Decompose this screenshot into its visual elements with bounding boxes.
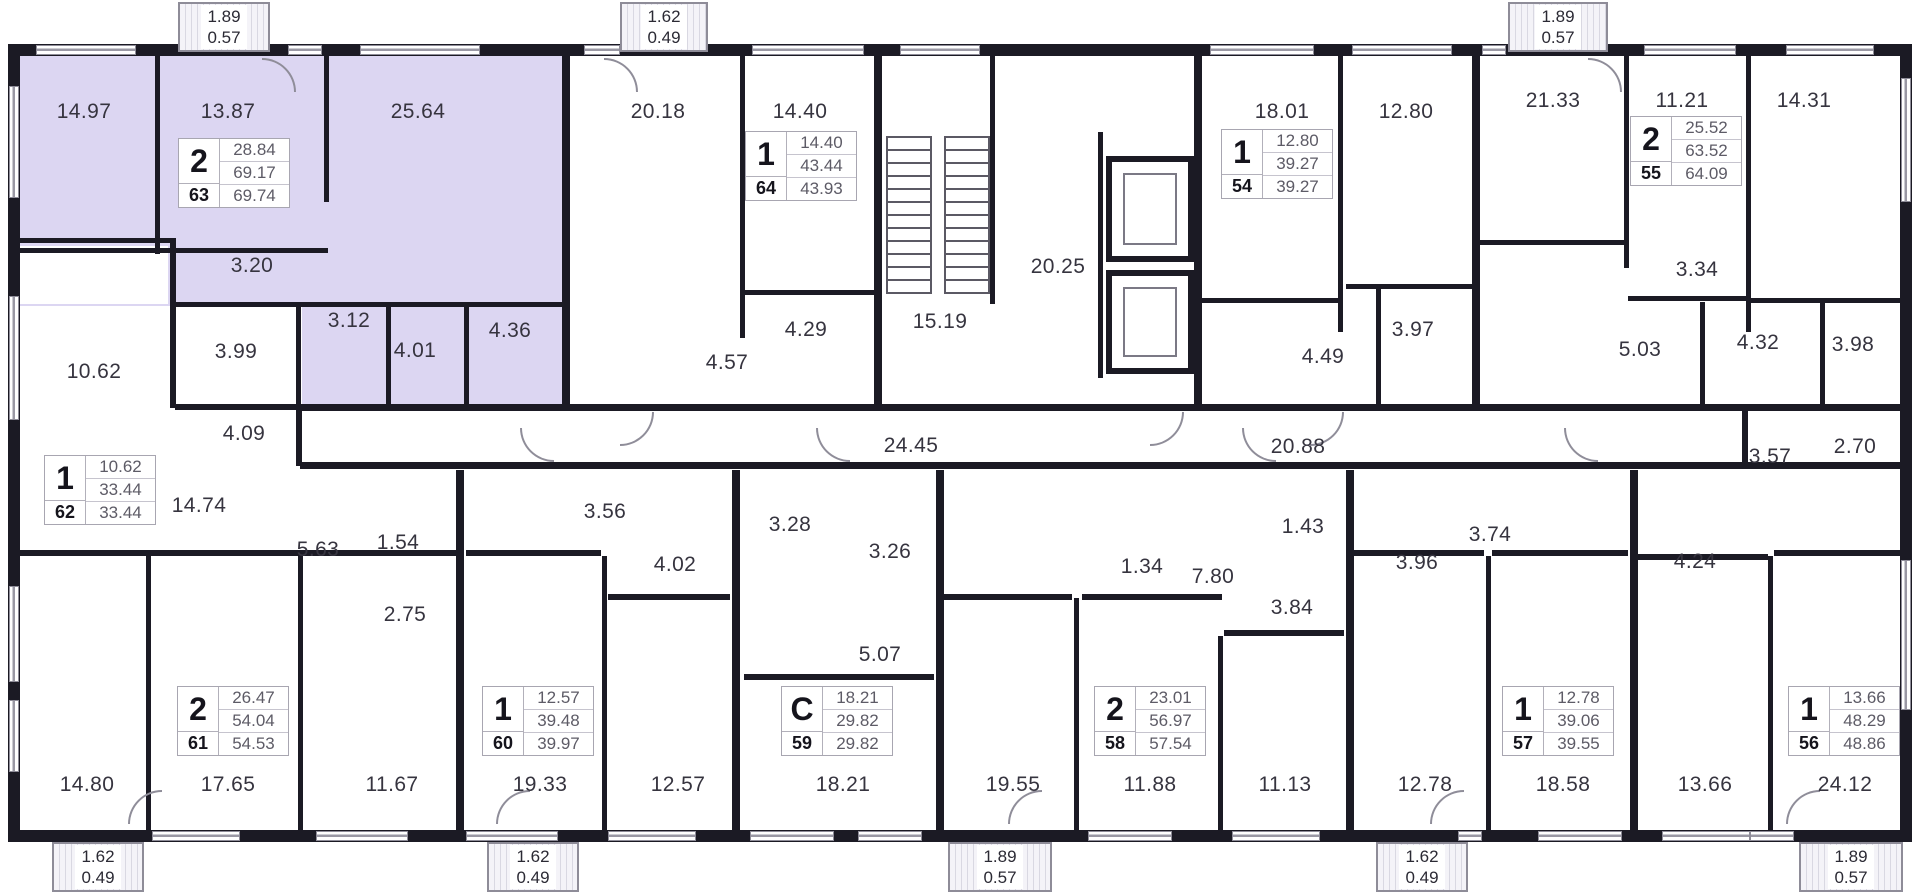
room-area-label: 2.70 <box>1834 435 1876 459</box>
room-area-label: 20.88 <box>1271 435 1326 459</box>
unit-area-value: 14.40 <box>787 132 856 154</box>
window-icon <box>900 45 980 55</box>
room-area-label: 12.80 <box>1379 100 1434 124</box>
window-icon <box>288 45 322 55</box>
room-area-label: 4.02 <box>654 553 696 577</box>
room-area-label: 3.99 <box>215 340 257 364</box>
wall <box>324 56 329 202</box>
balcony: 1.890.57 <box>948 842 1052 892</box>
unit-area-value: 48.29 <box>1830 709 1899 732</box>
room-area-label: 19.55 <box>986 773 1041 797</box>
window-icon <box>858 831 922 841</box>
window-icon <box>1458 831 1482 841</box>
room-area-label: 3.98 <box>1832 333 1874 357</box>
unit-area-value: 64.09 <box>1672 162 1741 185</box>
unit-area-value: 43.44 <box>787 154 856 177</box>
room-area-label: 14.97 <box>57 100 112 124</box>
room-area-label: 1.34 <box>1121 555 1163 579</box>
room-area-label: 1.54 <box>377 531 419 555</box>
unit-info-box-60[interactable]: 16012.5739.4839.97 <box>482 686 594 756</box>
wall <box>608 594 730 600</box>
staircase-icon <box>886 136 932 294</box>
wall <box>744 290 874 295</box>
unit-rooms-type: 2 <box>178 687 218 731</box>
wall <box>1472 56 1480 408</box>
room-area-label: 3.56 <box>584 500 626 524</box>
room-area-label: 4.36 <box>489 319 531 343</box>
room-area-label: 24.45 <box>884 434 939 458</box>
unit-number: 55 <box>1631 161 1671 185</box>
unit-area-value: 26.47 <box>219 687 288 709</box>
window-icon <box>466 831 558 841</box>
room-area-label: 15.19 <box>913 310 968 334</box>
wall <box>296 306 301 406</box>
window-icon <box>1901 78 1911 202</box>
wall <box>936 470 944 832</box>
unit-area-value: 39.48 <box>524 709 593 732</box>
window-icon <box>9 86 19 198</box>
door-arc-icon <box>620 412 654 446</box>
floor-plan: 14.9713.8725.6420.1814.4018.0112.8021.33… <box>0 0 1920 894</box>
wall <box>1082 594 1222 600</box>
room-area-label: 10.62 <box>67 360 122 384</box>
room-area-label: 4.24 <box>1674 550 1716 574</box>
wall <box>1628 296 1748 301</box>
wall <box>1742 404 1748 466</box>
unit-area-value: 69.17 <box>220 161 289 184</box>
room-area-label: 25.64 <box>391 100 446 124</box>
unit-rooms-type: 1 <box>1222 130 1262 174</box>
room-area-label: 3.34 <box>1676 258 1718 282</box>
balcony-area-label: 1.890.57 <box>1828 845 1873 890</box>
wall <box>1218 636 1223 832</box>
room-area-label: 24.12 <box>1818 773 1873 797</box>
room-area-label: 5.63 <box>297 538 339 562</box>
unit-rooms-type: 1 <box>1789 687 1829 731</box>
window-icon <box>9 700 19 772</box>
wall <box>744 674 934 680</box>
room-area-label: 20.18 <box>631 100 686 124</box>
wall <box>1492 550 1628 556</box>
balcony: 1.890.57 <box>178 2 270 52</box>
elevator-icon <box>1106 156 1194 262</box>
unit-number: 61 <box>178 731 218 755</box>
wall <box>1478 240 1626 245</box>
unit-area-value: 33.44 <box>86 478 155 501</box>
wall <box>1376 288 1381 406</box>
room-area-label: 18.21 <box>816 773 871 797</box>
wall <box>1486 556 1491 832</box>
room-area-label: 13.66 <box>1678 773 1733 797</box>
room-area-label: 14.80 <box>60 773 115 797</box>
unit-info-box-56[interactable]: 15613.6648.2948.86 <box>1788 686 1900 756</box>
unit-number: 58 <box>1095 731 1135 755</box>
room-area-label: 11.88 <box>1124 773 1177 797</box>
wall <box>8 238 173 243</box>
unit-number: 54 <box>1222 174 1262 198</box>
room-area-label: 7.80 <box>1192 565 1234 589</box>
unit-area-value: 18.21 <box>823 687 892 709</box>
wall <box>464 306 469 406</box>
door-arc-icon <box>1150 412 1184 446</box>
balcony: 1.890.57 <box>1799 842 1903 892</box>
unit-area-value: 12.57 <box>524 687 593 709</box>
unit-area-value: 29.82 <box>823 709 892 732</box>
room-area-label: 3.28 <box>769 513 811 537</box>
unit-info-box-64[interactable]: 16414.4043.4443.93 <box>745 131 857 201</box>
room-area-label: 3.74 <box>1469 523 1511 547</box>
wall <box>386 306 391 406</box>
unit-info-box-54[interactable]: 15412.8039.2739.27 <box>1221 129 1333 199</box>
window-icon <box>316 831 408 841</box>
unit-number: 57 <box>1503 731 1543 755</box>
unit-area-value: 29.82 <box>823 732 892 755</box>
unit-area-value: 63.52 <box>1672 139 1741 162</box>
balcony-area-label: 1.620.49 <box>510 845 555 890</box>
window-icon <box>752 45 864 55</box>
balcony-area-label: 1.620.49 <box>1399 845 1444 890</box>
room-area-label: 14.40 <box>773 100 828 124</box>
unit-area-value: 28.84 <box>220 139 289 161</box>
window-icon <box>1232 831 1320 841</box>
wall <box>1774 550 1900 556</box>
unit-info-box-57[interactable]: 15712.7839.0639.55 <box>1502 686 1614 756</box>
door-arc-icon <box>1786 790 1820 824</box>
unit-area-value: 12.80 <box>1263 130 1332 152</box>
balcony: 1.620.49 <box>487 842 579 892</box>
unit-area-value: 56.97 <box>1136 709 1205 732</box>
unit-number: 59 <box>782 731 822 755</box>
room-area-label: 4.29 <box>785 318 827 342</box>
wall <box>944 594 1072 600</box>
unit-number: 64 <box>746 176 786 200</box>
wall <box>1746 56 1751 332</box>
unit-area-value: 25.52 <box>1672 117 1741 139</box>
room-area-label: 18.58 <box>1536 773 1591 797</box>
unit-area-value: 39.06 <box>1544 709 1613 732</box>
unit-area-value: 54.53 <box>219 732 288 755</box>
unit-area-value: 43.93 <box>787 177 856 200</box>
door-arc-icon <box>520 428 554 462</box>
unit-area-value: 13.66 <box>1830 687 1899 709</box>
wall <box>296 404 302 466</box>
wall <box>1750 298 1902 303</box>
wall <box>1202 298 1340 303</box>
room-area-label: 5.07 <box>859 643 901 667</box>
wall <box>1624 56 1629 268</box>
room-area-label: 1.43 <box>1282 515 1324 539</box>
room-area-label: 3.20 <box>231 254 273 278</box>
room-area-label: 12.78 <box>1398 773 1453 797</box>
unit-area-value: 69.74 <box>220 184 289 207</box>
window-icon <box>9 586 19 682</box>
unit-rooms-type: 2 <box>179 139 219 183</box>
wall <box>175 302 566 307</box>
room-area-label: 5.03 <box>1619 338 1661 362</box>
room-area-label: 3.97 <box>1392 318 1434 342</box>
room-area-label: 19.33 <box>513 773 568 797</box>
wall <box>146 556 151 832</box>
room-area-label: 4.32 <box>1737 331 1779 355</box>
wall <box>562 56 570 408</box>
room-area-label: 11.21 <box>1656 89 1709 113</box>
window-icon <box>1662 831 1750 841</box>
unit-area-value: 57.54 <box>1136 732 1205 755</box>
window-icon <box>360 45 480 55</box>
room-area-label: 3.84 <box>1271 596 1313 620</box>
window-icon <box>1901 560 1911 710</box>
unit-info-box-63[interactable]: 26328.8469.1769.74 <box>178 138 290 208</box>
unit-rooms-type: 1 <box>45 456 85 500</box>
unit-area-value: 10.62 <box>86 456 155 478</box>
room-area-label: 17.65 <box>201 773 256 797</box>
wall <box>1338 56 1343 332</box>
unit-area-value: 39.55 <box>1544 732 1613 755</box>
unit-rooms-type: 1 <box>483 687 523 731</box>
room-area-label: 4.49 <box>1302 345 1344 369</box>
unit-area-value: 39.97 <box>524 732 593 755</box>
door-arc-icon <box>1564 428 1598 462</box>
balcony-area-label: 1.620.49 <box>641 5 686 50</box>
wall <box>874 56 882 408</box>
room-area-label: 14.74 <box>172 494 227 518</box>
window-icon <box>608 831 696 841</box>
balcony-area-label: 1.890.57 <box>201 5 246 50</box>
room-area-label: 12.57 <box>651 773 706 797</box>
door-arc-icon <box>604 58 638 92</box>
door-arc-icon <box>816 428 850 462</box>
room-area-label: 11.67 <box>366 773 419 797</box>
room-area-label: 13.87 <box>201 100 256 124</box>
room-area-label: 3.26 <box>869 540 911 564</box>
room-area-label: 4.57 <box>706 351 748 375</box>
balcony-area-label: 1.890.57 <box>977 845 1022 890</box>
wall <box>1074 598 1079 832</box>
wall <box>300 462 1902 469</box>
unit-area-value: 39.27 <box>1263 152 1332 175</box>
balcony: 1.620.49 <box>52 842 144 892</box>
wall <box>170 238 176 408</box>
balcony: 1.890.57 <box>1508 2 1608 52</box>
unit-area-value: 39.27 <box>1263 175 1332 198</box>
unit-area-value: 54.04 <box>219 709 288 732</box>
balcony: 1.620.49 <box>1376 842 1468 892</box>
unit-number: 56 <box>1789 731 1829 755</box>
window-icon <box>1088 831 1172 841</box>
room-area-label: 3.12 <box>328 309 370 333</box>
wall <box>602 556 607 832</box>
unit-rooms-type: C <box>782 687 822 731</box>
room-area-label: 21.33 <box>1526 89 1581 113</box>
unit-area-value: 48.86 <box>1830 732 1899 755</box>
unit-area-value: 12.78 <box>1544 687 1613 709</box>
door-arc-icon <box>1588 58 1622 92</box>
balcony-area-label: 1.890.57 <box>1535 5 1580 50</box>
window-icon <box>1750 831 1794 841</box>
unit-rooms-type: 1 <box>746 132 786 176</box>
window-icon <box>584 45 620 55</box>
window-icon <box>1538 831 1622 841</box>
room-area-label: 18.01 <box>1255 100 1310 124</box>
unit-info-box-55[interactable]: 25525.5263.5264.09 <box>1630 116 1742 186</box>
wall <box>1098 132 1103 378</box>
wall <box>466 550 601 556</box>
staircase-icon <box>944 136 990 294</box>
room-area-label: 3.57 <box>1749 445 1791 469</box>
unit-info-box-58[interactable]: 25823.0156.9757.54 <box>1094 686 1206 756</box>
window-icon <box>152 831 240 841</box>
unit-info-box-62[interactable]: 16210.6233.4433.44 <box>44 455 156 525</box>
window-icon <box>1786 45 1874 55</box>
wall <box>155 56 160 254</box>
unit-rooms-type: 2 <box>1095 687 1135 731</box>
room-area-label: 20.25 <box>1031 255 1086 279</box>
window-icon <box>36 45 136 55</box>
unit-info-box-61[interactable]: 26126.4754.0454.53 <box>177 686 289 756</box>
wall <box>1224 630 1344 636</box>
wall <box>8 248 328 253</box>
elevator-icon <box>1106 270 1194 374</box>
room-area-label: 3.96 <box>1396 551 1438 575</box>
room-area-label: 14.31 <box>1777 89 1832 113</box>
wall <box>1194 56 1202 408</box>
unit-area-value: 23.01 <box>1136 687 1205 709</box>
wall <box>8 830 1912 842</box>
door-arc-icon <box>128 790 162 824</box>
wall <box>1346 470 1354 832</box>
wall <box>1768 556 1773 832</box>
wall <box>456 470 464 832</box>
room-cover <box>18 246 168 304</box>
window-icon <box>1210 45 1314 55</box>
wall <box>1700 302 1705 404</box>
room-area-label: 4.09 <box>223 422 265 446</box>
wall <box>990 56 995 304</box>
wall <box>1630 470 1638 832</box>
window-icon <box>9 296 19 420</box>
wall <box>298 556 303 832</box>
balcony: 1.620.49 <box>620 2 708 52</box>
unit-number: 63 <box>179 183 219 207</box>
wall <box>300 404 1902 411</box>
room-area-label: 2.75 <box>384 603 426 627</box>
room-area-label: 11.13 <box>1259 773 1312 797</box>
wall <box>732 470 740 832</box>
wall <box>1346 284 1474 289</box>
unit-info-box-59[interactable]: C5918.2129.8229.82 <box>781 686 893 756</box>
unit-area-value: 33.44 <box>86 501 155 524</box>
wall <box>1820 302 1825 404</box>
unit-rooms-type: 2 <box>1631 117 1671 161</box>
unit-number: 62 <box>45 500 85 524</box>
room-area-label: 4.01 <box>394 339 436 363</box>
unit-number: 60 <box>483 731 523 755</box>
window-icon <box>1644 45 1736 55</box>
window-icon <box>1482 45 1506 55</box>
window-icon <box>750 831 834 841</box>
balcony-area-label: 1.620.49 <box>75 845 120 890</box>
window-icon <box>1352 45 1452 55</box>
unit-rooms-type: 1 <box>1503 687 1543 731</box>
